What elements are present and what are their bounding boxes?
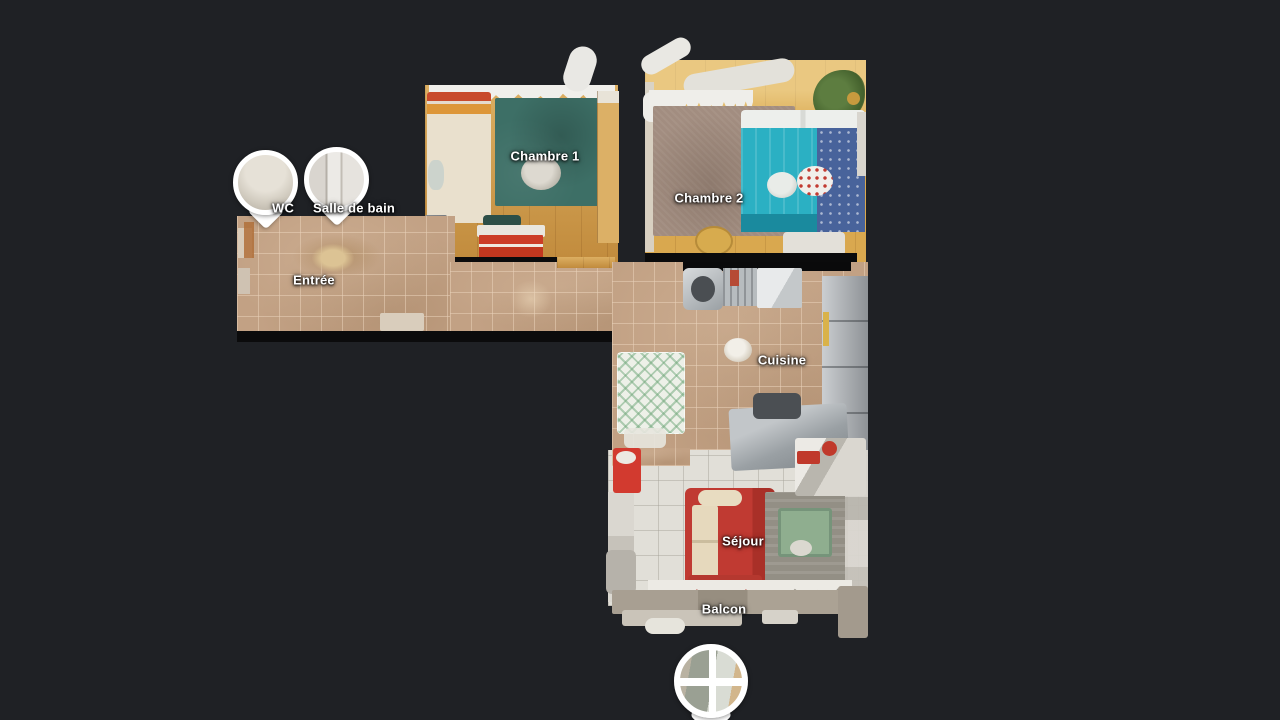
label-cuisine: Cuisine [758, 353, 806, 368]
rug-white-item [790, 540, 812, 556]
bed-pillow [428, 160, 444, 190]
radiator-white-top [616, 451, 636, 464]
wardrobe [597, 91, 619, 243]
bed-chambre-1 [427, 92, 491, 223]
dresser-red [477, 225, 545, 259]
kitchen-chair [624, 428, 666, 448]
counter-white [757, 268, 802, 308]
label-entree: Entrée [293, 273, 335, 288]
tv-unit [795, 438, 866, 496]
table-items-red [797, 451, 820, 464]
label-chambre-1: Chambre 1 [511, 149, 580, 164]
red-round-object [822, 441, 837, 456]
dining-chair-dark [753, 393, 801, 419]
cat-on-bed [767, 172, 797, 198]
counter-item-red [730, 270, 739, 286]
bed-teal-edge [741, 214, 817, 232]
doormat [380, 313, 424, 331]
bed-chambre-2 [741, 110, 865, 234]
doorway-chambre-1 [557, 257, 615, 268]
floorplan-viewport: Entrée Chambre 1 Chambre 2 Cuisine Séjou… [0, 0, 1280, 720]
curtain-streak-1 [638, 34, 695, 78]
pano-pin-balcony-window[interactable] [674, 644, 748, 718]
oven-yellow-strip [823, 312, 829, 346]
door-wood [244, 222, 254, 258]
label-sejour: Séjour [722, 534, 764, 549]
towel-white [724, 338, 752, 362]
balcony-ledge-mid [762, 610, 798, 624]
window-photo-thumbnail [674, 644, 748, 718]
sofa-cushions-cream [692, 505, 718, 578]
label-chambre-2: Chambre 2 [675, 191, 744, 206]
bouquet-on-bed [797, 166, 833, 196]
radiator-red [613, 448, 641, 493]
drainboard [723, 268, 757, 306]
room-entree[interactable] [237, 216, 455, 338]
balcony-white-blob [645, 618, 685, 634]
kitchen-sink [683, 268, 723, 310]
sink-bowl [691, 276, 715, 302]
floor-patch [312, 244, 354, 272]
bed-striped-blanket [427, 92, 491, 124]
wall-corridor-bottom [237, 331, 615, 342]
worn-patch [510, 280, 552, 318]
wall-sliver-right [857, 112, 866, 176]
balcony-corner-right [838, 586, 868, 638]
kitchen-table [617, 352, 685, 434]
label-wc: WC [272, 201, 294, 216]
label-salle-de-bain: Salle de bain [313, 201, 395, 216]
plant-pot [847, 92, 860, 105]
room-chambre-2[interactable] [645, 60, 866, 262]
bath-doorway [238, 268, 250, 294]
stool-yellow [695, 226, 733, 256]
label-balcon: Balcon [702, 602, 747, 617]
sofa-arm-cream [698, 490, 742, 506]
